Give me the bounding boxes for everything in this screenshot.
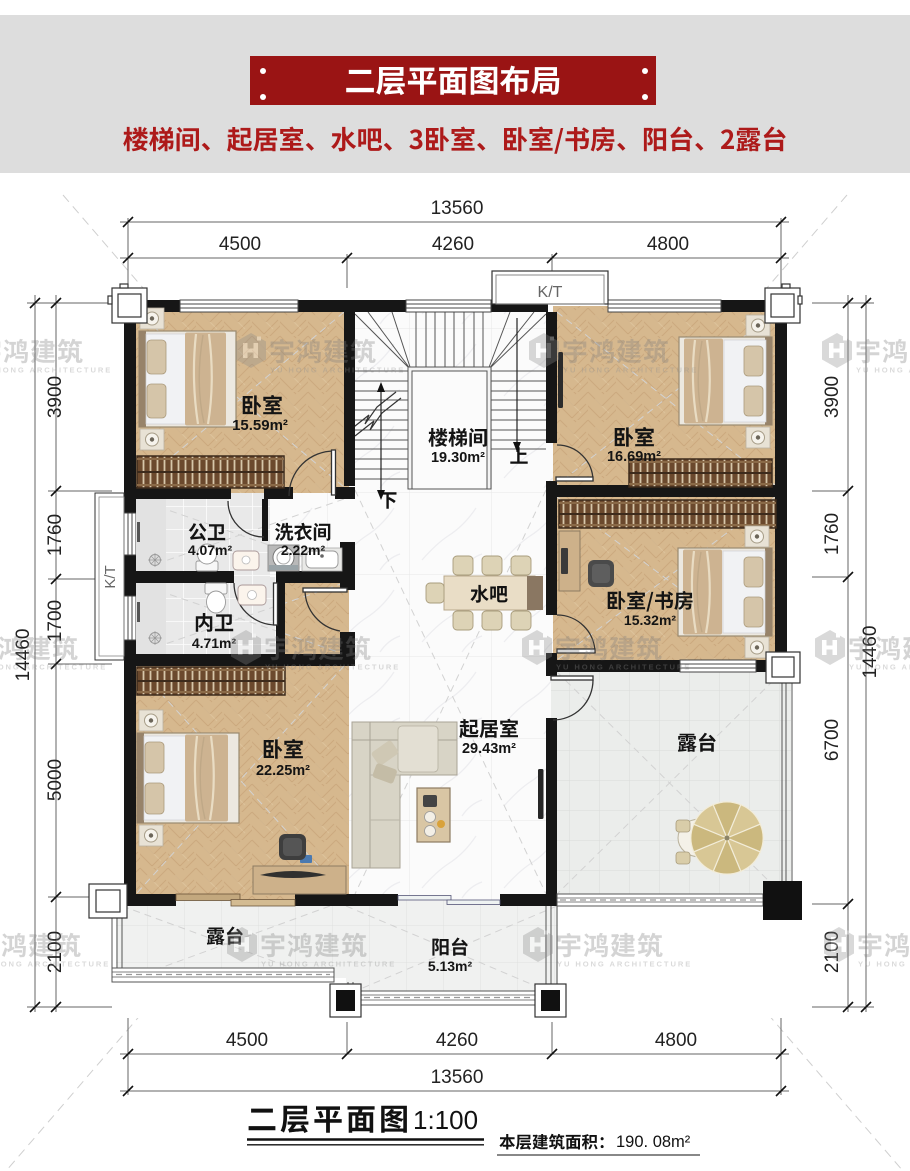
svg-text:15.59m²: 15.59m² bbox=[232, 417, 288, 434]
svg-text:13560: 13560 bbox=[431, 198, 484, 219]
svg-text:29.43m²: 29.43m² bbox=[462, 741, 516, 757]
svg-text:13560: 13560 bbox=[431, 1067, 484, 1088]
svg-text:4800: 4800 bbox=[647, 234, 689, 255]
svg-text:3900: 3900 bbox=[822, 376, 843, 418]
svg-text:4260: 4260 bbox=[436, 1030, 478, 1051]
svg-text:4.07m²: 4.07m² bbox=[188, 542, 233, 558]
svg-text:1:100: 1:100 bbox=[413, 1105, 478, 1135]
svg-text:K/T: K/T bbox=[538, 284, 563, 301]
svg-text:4800: 4800 bbox=[655, 1030, 697, 1051]
svg-text:6700: 6700 bbox=[822, 719, 843, 761]
svg-text:1700: 1700 bbox=[45, 600, 66, 642]
svg-text:4500: 4500 bbox=[226, 1030, 268, 1051]
svg-text:2.22m²: 2.22m² bbox=[281, 542, 326, 558]
svg-text:4500: 4500 bbox=[219, 234, 261, 255]
svg-text:1760: 1760 bbox=[822, 513, 843, 555]
svg-text:3900: 3900 bbox=[45, 376, 66, 418]
svg-text:19.30m²: 19.30m² bbox=[431, 450, 485, 466]
svg-text:16.69m²: 16.69m² bbox=[607, 449, 661, 465]
svg-text:190. 08m²: 190. 08m² bbox=[616, 1133, 691, 1151]
svg-text:4260: 4260 bbox=[432, 234, 474, 255]
svg-text:K/T: K/T bbox=[102, 565, 119, 588]
svg-text:5.13m²: 5.13m² bbox=[428, 958, 473, 974]
svg-text:4.71m²: 4.71m² bbox=[192, 635, 237, 651]
svg-text:15.32m²: 15.32m² bbox=[624, 612, 676, 628]
svg-text:22.25m²: 22.25m² bbox=[256, 763, 310, 779]
svg-text:1760: 1760 bbox=[45, 514, 66, 556]
svg-text:5000: 5000 bbox=[45, 759, 66, 801]
